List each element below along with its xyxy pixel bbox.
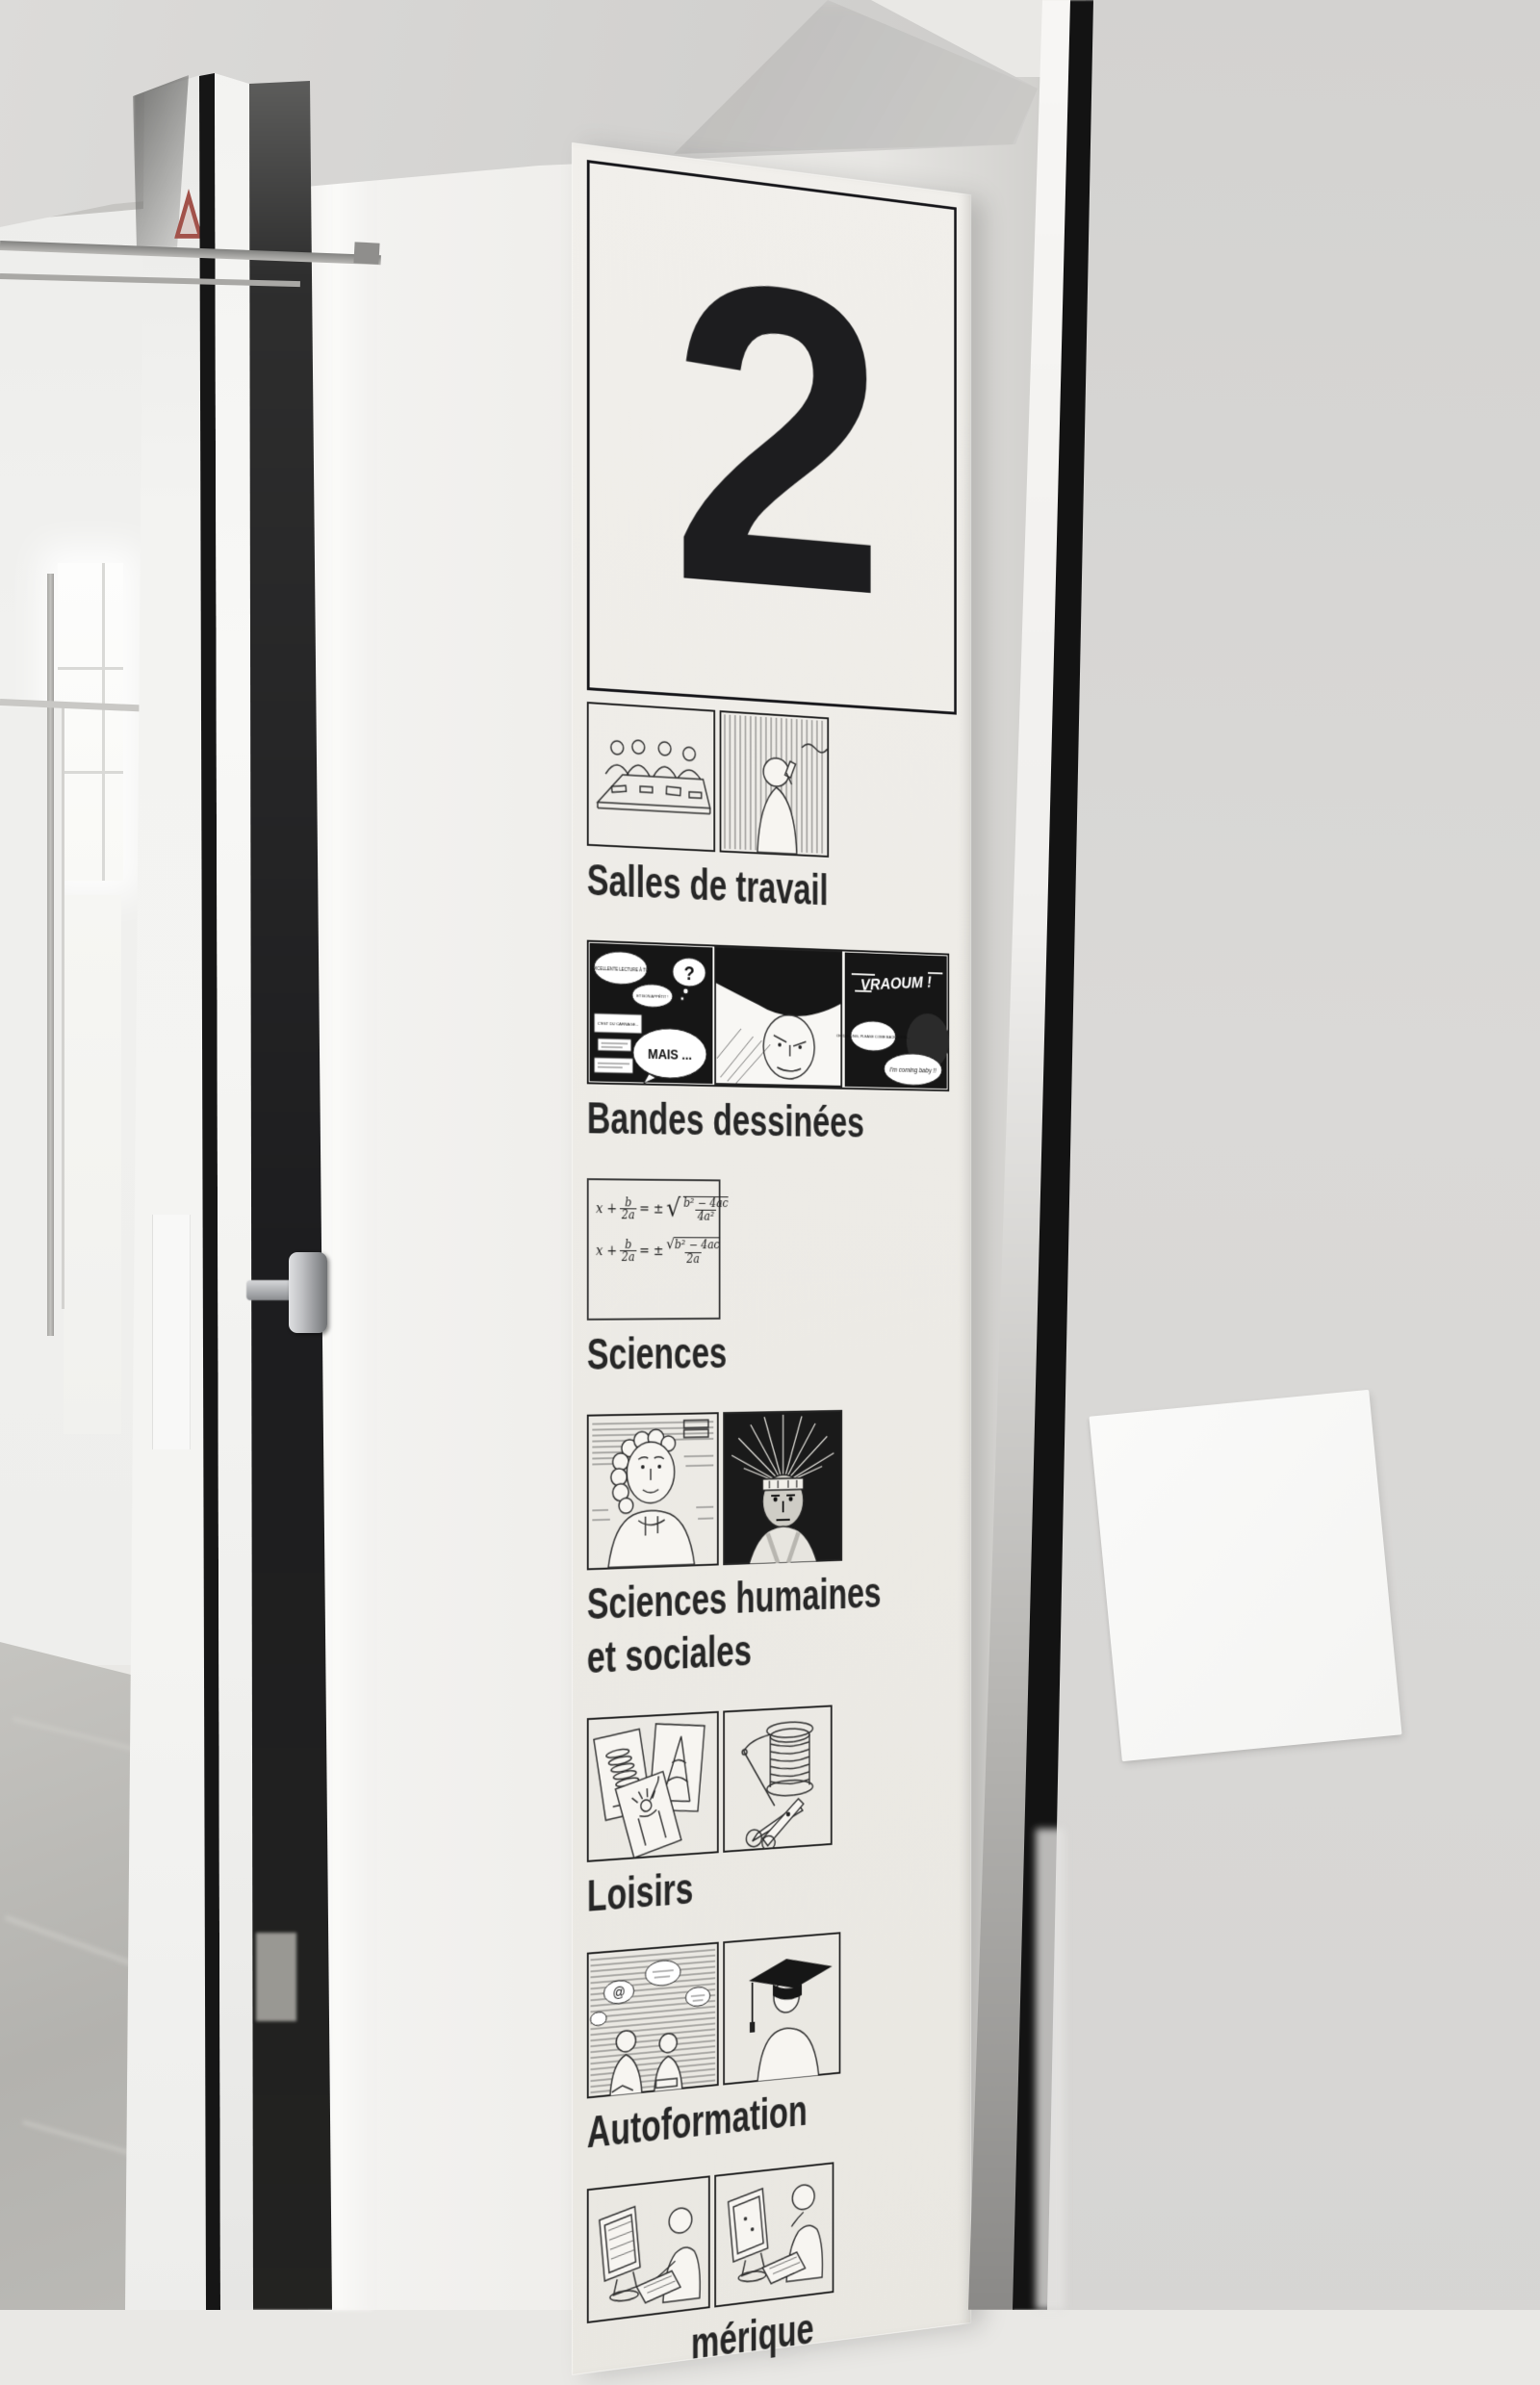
floor-number: 2	[670, 211, 879, 659]
formula-frac-den: 2a	[620, 1208, 636, 1221]
conduit-pipe-vertical	[47, 574, 54, 1336]
sign-section-loisirs: Loisirs	[587, 1699, 955, 1922]
door-stop	[256, 1933, 296, 2021]
section-label-line2: et sociales	[587, 1619, 884, 1683]
formula-lhs: x +	[596, 1244, 617, 1259]
sign-section-autoformation: @	[587, 1923, 955, 2159]
floor-sign-panel: 2	[572, 142, 971, 2375]
door-closer-bracket	[353, 242, 379, 264]
section-label: Salles de travail	[587, 854, 884, 918]
computer-user-illustration	[714, 2162, 834, 2307]
right-edge-glow	[1036, 1829, 1065, 2310]
sign-section-sciences: x + b2a = ± √ b² − 4ac4a² x + b2a = ± √b…	[587, 1178, 955, 1380]
sign-sections: Salles de travail EXCELLENTE LECTURE À T…	[572, 701, 971, 2385]
sign-section-bandes-dessinees: EXCELLENTE LECTURE À TOI ET BON APPÉTIT …	[587, 940, 955, 1149]
indigenous-portrait-illustration	[723, 1410, 842, 1565]
formula-frac-num: b	[625, 1196, 631, 1209]
door-pull-plate	[152, 1215, 191, 1449]
radical-sign: √	[666, 1198, 680, 1220]
section-label: Loisirs	[587, 1849, 884, 1922]
formula-rad2-num: b² − 4ac	[675, 1237, 720, 1251]
window-upper	[58, 563, 123, 881]
study-table-illustration	[587, 702, 715, 852]
bubble-mais: MAIS ...	[648, 1047, 692, 1063]
travel-postcards-illustration	[587, 1711, 719, 1862]
math-formula-illustration: x + b2a = ± √ b² − 4ac4a² x + b2a = ± √b…	[587, 1178, 721, 1321]
sign-section-sciences-humaines: Sciences humaines et sociales	[587, 1408, 955, 1683]
far-door	[0, 707, 64, 1309]
bubble-bon-appetit: ET BON APPÉTIT !	[636, 993, 668, 999]
computer-user-illustration	[587, 2175, 710, 2323]
at-symbol: @	[612, 1985, 625, 2001]
formula-lhs: x +	[596, 1201, 617, 1217]
formula-frac-num: b	[625, 1239, 631, 1251]
bubble-coming: I'm coming baby !!	[889, 1067, 936, 1075]
philosopher-portrait-illustration	[587, 1412, 719, 1570]
formula-rad2-den: 2a	[685, 1252, 702, 1265]
language-conversation-illustration: @	[587, 1942, 719, 2099]
blank-sign-panel	[1089, 1390, 1401, 1761]
formula-rad1-den: 4a²	[696, 1209, 716, 1221]
graduate-illustration	[723, 1932, 840, 2085]
bubble-vraoum: VRAOUM !	[860, 974, 933, 994]
sign-section-salles-de-travail: Salles de travail	[587, 702, 955, 920]
window-lower	[64, 895, 121, 1434]
bubble-question: ?	[684, 963, 695, 986]
phone-booth-illustration	[720, 710, 830, 858]
formula-frac-den: 2a	[620, 1250, 636, 1264]
comics-illustration: EXCELLENTE LECTURE À TOI ET BON APPÉTIT …	[587, 940, 949, 1091]
section-label: Sciences	[587, 1325, 884, 1379]
sign-section-espace-numerique: mérique	[587, 2149, 955, 2383]
section-label: Bandes dessinées	[587, 1091, 884, 1147]
sewing-illustration	[723, 1705, 832, 1852]
door-handle-knob	[289, 1252, 327, 1333]
formula-rad1-num: b² − 4ac	[683, 1197, 729, 1210]
floor-number-box: 2	[587, 160, 957, 715]
formula-eq: = ±	[639, 1244, 663, 1259]
formula-eq: = ±	[639, 1201, 663, 1217]
